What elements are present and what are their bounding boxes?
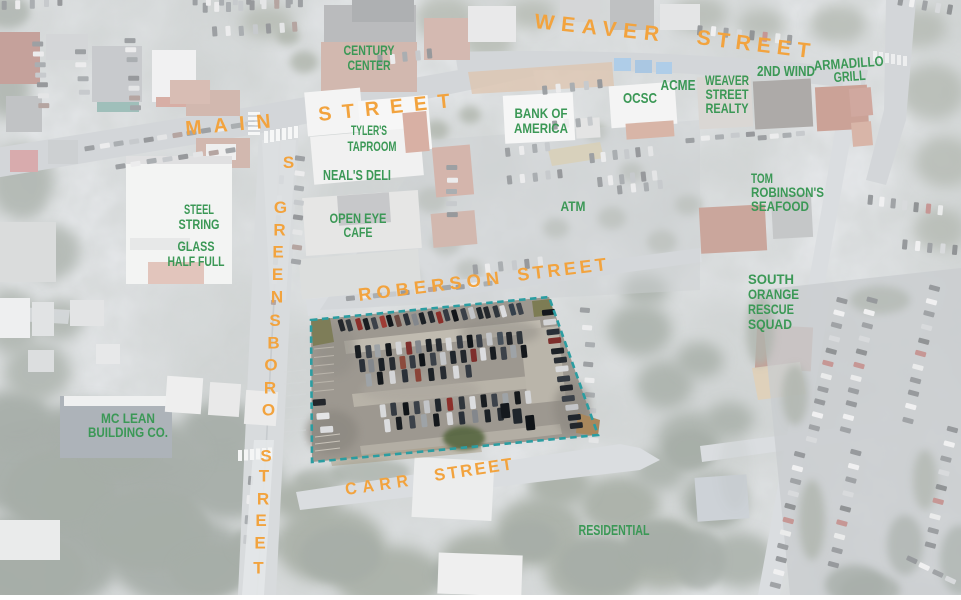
svg-text:BUILDING CO.: BUILDING CO. [88, 424, 168, 440]
svg-text:OCSC: OCSC [623, 90, 657, 107]
svg-text:NEAL'S DELI: NEAL'S DELI [323, 167, 391, 184]
svg-text:STRING: STRING [179, 216, 220, 232]
svg-text:O: O [264, 356, 277, 375]
svg-text:E: E [272, 265, 283, 284]
svg-text:R: R [257, 490, 269, 509]
svg-text:AMERICA: AMERICA [514, 120, 568, 136]
svg-text:STEEL: STEEL [184, 201, 214, 217]
svg-text:SQUAD: SQUAD [748, 316, 792, 332]
svg-text:SEAFOOD: SEAFOOD [751, 198, 809, 214]
svg-text:B: B [267, 334, 279, 353]
svg-text:GLASS: GLASS [178, 238, 215, 254]
svg-text:RESIDENTIAL: RESIDENTIAL [579, 522, 650, 539]
svg-text:ATM: ATM [561, 198, 586, 214]
svg-text:SOUTH: SOUTH [748, 271, 794, 287]
svg-text:GRILL: GRILL [833, 67, 866, 85]
svg-text:TYLER'S: TYLER'S [351, 122, 387, 138]
svg-text:TAPROOM: TAPROOM [348, 138, 397, 154]
svg-text:2ND WIND: 2ND WIND [757, 63, 815, 80]
svg-text:T: T [253, 559, 264, 578]
svg-text:REALTY: REALTY [706, 100, 750, 116]
svg-text:S: S [260, 447, 271, 466]
svg-text:N: N [271, 288, 283, 307]
svg-text:T: T [259, 467, 270, 486]
svg-text:E: E [272, 243, 283, 262]
svg-text:O: O [262, 401, 275, 420]
svg-text:ACME: ACME [661, 77, 696, 94]
svg-text:R: R [273, 221, 285, 240]
svg-text:ORANGE: ORANGE [748, 286, 799, 302]
svg-text:S: S [269, 311, 280, 330]
svg-text:RESCUE: RESCUE [748, 301, 794, 317]
svg-text:CAFE: CAFE [344, 224, 373, 240]
svg-text:BANK OF: BANK OF [515, 105, 568, 121]
svg-text:CENTURY: CENTURY [344, 42, 395, 58]
svg-text:E: E [254, 534, 265, 553]
svg-text:E: E [255, 511, 266, 530]
svg-text:R: R [264, 379, 276, 398]
svg-text:CENTER: CENTER [348, 57, 391, 73]
svg-text:HALF FULL: HALF FULL [168, 253, 225, 269]
svg-text:G: G [274, 198, 287, 217]
svg-text:S: S [283, 153, 294, 172]
